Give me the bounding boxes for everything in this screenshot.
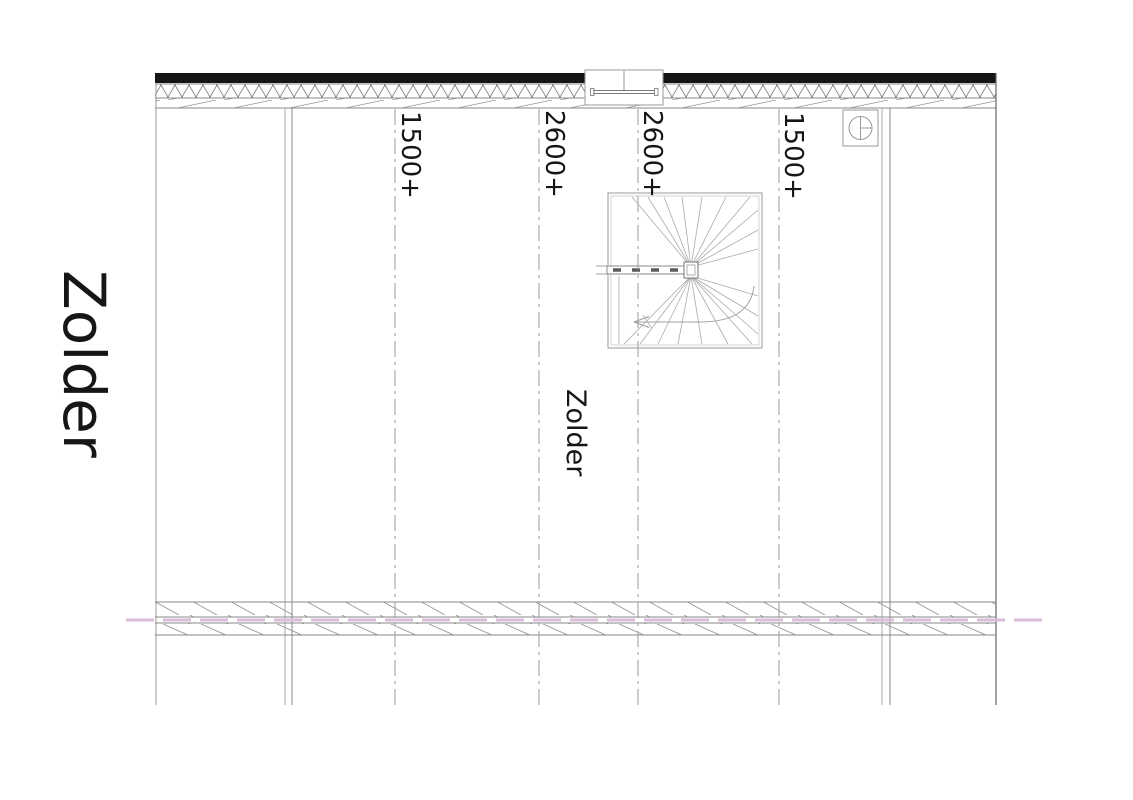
- dimension-label-3: 2600+: [637, 110, 666, 198]
- floor-plan-sheet: Zolder Zolder 1500+ 2600+ 2600+ 1500+: [0, 0, 1133, 800]
- ventilation-icon: [843, 110, 878, 146]
- dimension-label-1: 1500+: [395, 111, 424, 199]
- room-label: Zolder: [562, 389, 589, 476]
- newel-post: [684, 262, 698, 278]
- top-wall: [155, 73, 996, 108]
- floor-band: [126, 602, 1048, 635]
- floor-title: Zolder: [56, 270, 111, 458]
- roof-window: [585, 70, 663, 105]
- dimension-label-2: 2600+: [539, 110, 568, 198]
- staircase: [596, 193, 762, 348]
- dimension-label-4: 1500+: [778, 112, 807, 200]
- insulation-hatch: [155, 85, 996, 99]
- roof-plate-hatch: [155, 99, 996, 109]
